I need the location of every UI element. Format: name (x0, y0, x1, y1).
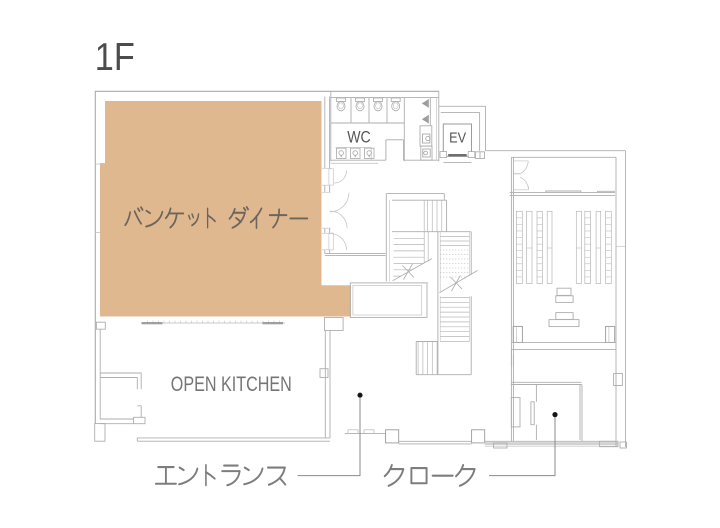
svg-text:OPEN KITCHEN: OPEN KITCHEN (171, 372, 292, 396)
svg-text:WC: WC (347, 128, 371, 147)
svg-text:1F: 1F (95, 36, 135, 79)
svg-text:EV: EV (449, 129, 466, 146)
